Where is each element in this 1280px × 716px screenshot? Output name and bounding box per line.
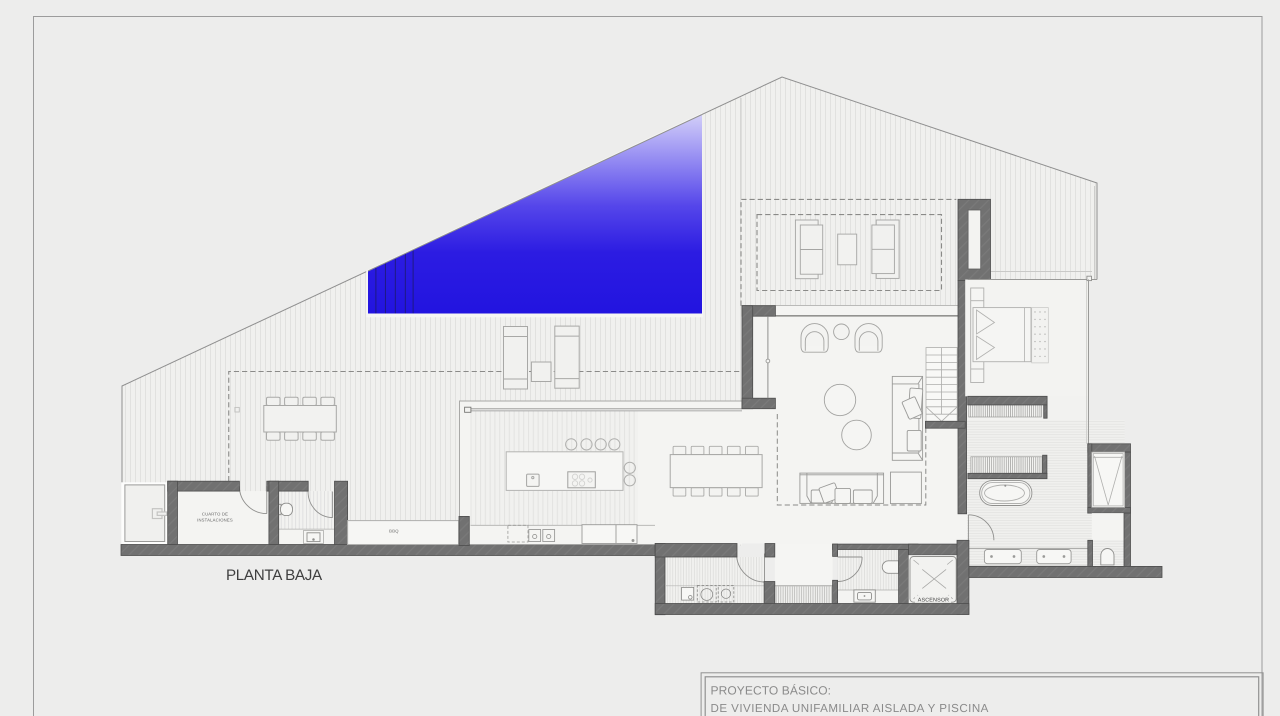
svg-text:ASCENSOR: ASCENSOR	[918, 597, 949, 603]
svg-text:BBQ: BBQ	[389, 528, 399, 533]
svg-text:DE VIVIENDA UNIFAMILIAR AISLAD: DE VIVIENDA UNIFAMILIAR AISLADA Y PISCIN…	[711, 702, 989, 715]
svg-text:INSTALACIONES: INSTALACIONES	[197, 518, 233, 523]
svg-text:PROYECTO BÁSICO:: PROYECTO BÁSICO:	[711, 684, 832, 698]
svg-text:PLANTA BAJA: PLANTA BAJA	[226, 567, 323, 584]
svg-text:CUARTO DE: CUARTO DE	[202, 512, 228, 517]
